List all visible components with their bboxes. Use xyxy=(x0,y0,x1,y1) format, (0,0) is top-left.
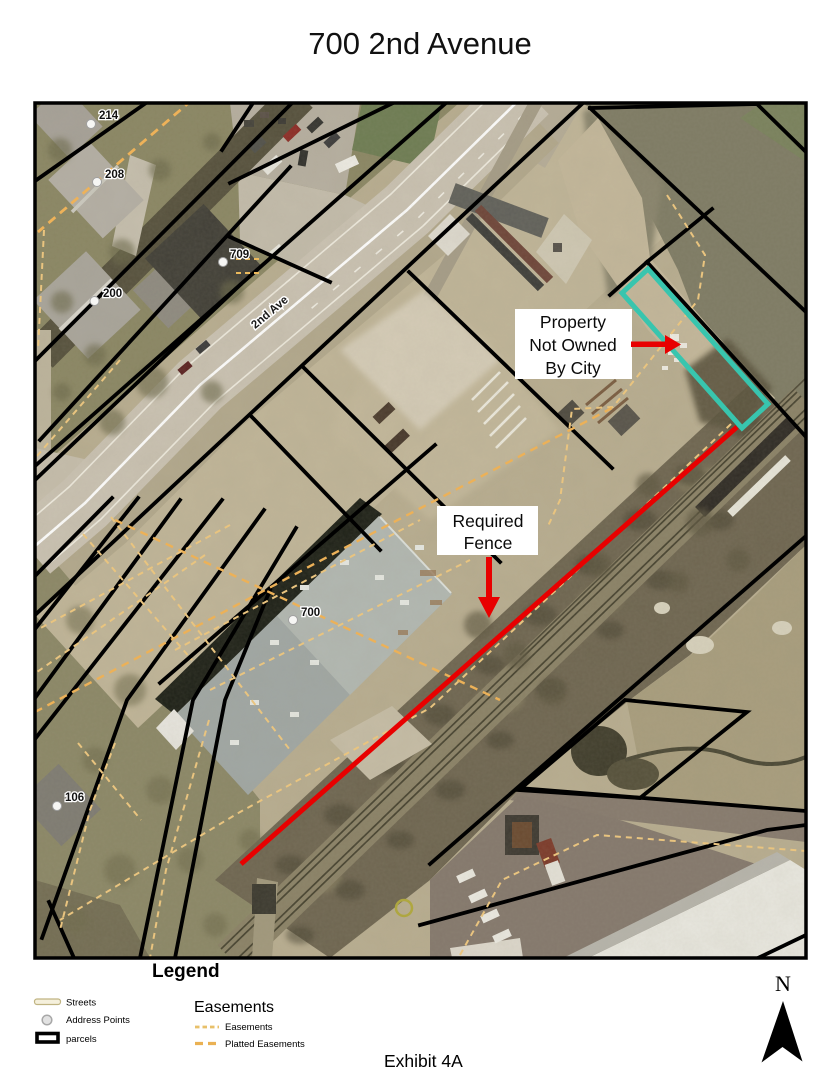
svg-text:700 2nd Avenue: 700 2nd Avenue xyxy=(308,26,532,61)
svg-text:Legend: Legend xyxy=(152,961,220,982)
svg-text:106: 106 xyxy=(65,792,84,804)
svg-text:700: 700 xyxy=(301,607,320,619)
svg-text:parcels: parcels xyxy=(66,1034,97,1045)
svg-text:Property: Property xyxy=(540,312,606,332)
svg-text:709: 709 xyxy=(230,249,249,261)
svg-text:214: 214 xyxy=(99,110,119,122)
svg-text:Easements: Easements xyxy=(194,999,274,1016)
svg-text:208: 208 xyxy=(105,169,125,181)
svg-text:Platted Easements: Platted Easements xyxy=(225,1039,305,1050)
svg-text:Exhibit 4A: Exhibit 4A xyxy=(384,1051,463,1071)
svg-text:Fence: Fence xyxy=(464,533,513,553)
svg-text:Required: Required xyxy=(452,511,523,531)
svg-text:By City: By City xyxy=(545,358,601,378)
svg-text:N: N xyxy=(775,971,791,996)
svg-text:Streets: Streets xyxy=(66,998,96,1009)
svg-text:200: 200 xyxy=(103,288,122,300)
svg-text:Easements: Easements xyxy=(225,1022,273,1033)
svg-text:Not Owned: Not Owned xyxy=(529,335,617,355)
svg-text:Address Points: Address Points xyxy=(66,1015,130,1026)
